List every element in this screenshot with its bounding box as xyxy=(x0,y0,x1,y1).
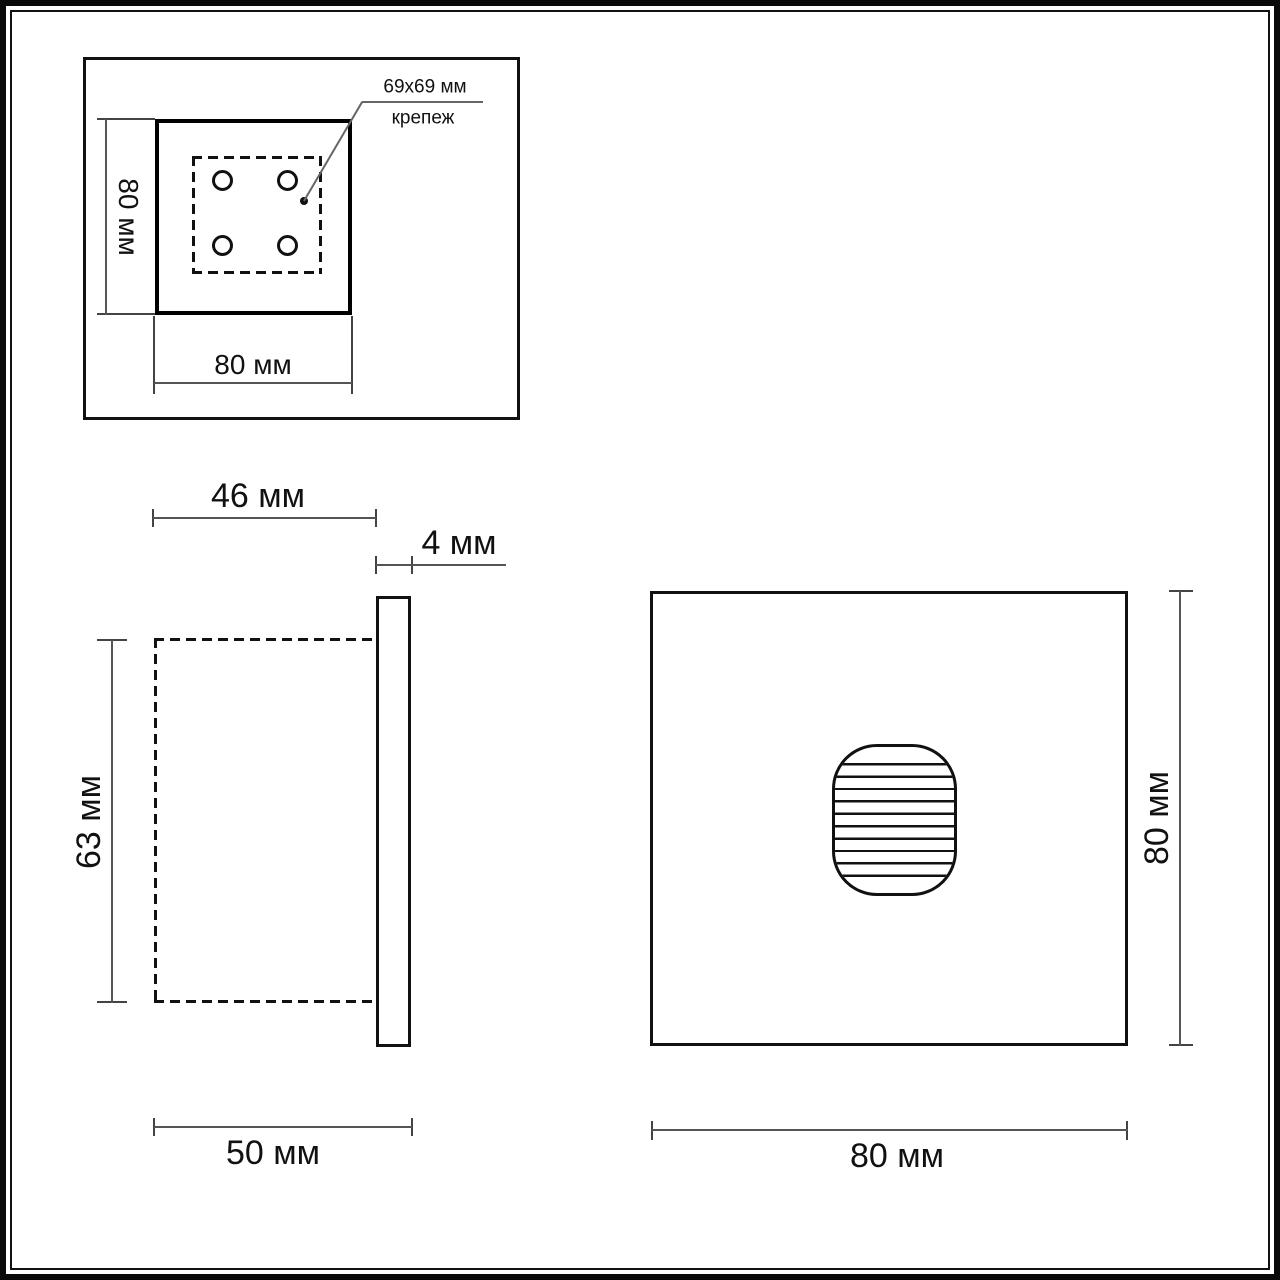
screw-hole-top-left xyxy=(212,170,233,191)
drawing-canvas: 69x69 мм крепеж 80 мм 80 мм 46 мм 4 мм xyxy=(0,0,1280,1280)
side-height-dim-line xyxy=(111,640,113,1003)
side-body-height-label: 63 мм xyxy=(72,775,106,869)
front-louver-slats xyxy=(835,763,954,885)
side-total-depth-label: 50 мм xyxy=(226,1136,320,1170)
screw-hole-top-right xyxy=(277,170,298,191)
back-view-square xyxy=(155,119,352,315)
side-plate-dim-line xyxy=(376,564,506,566)
back-width-label: 80 мм xyxy=(214,351,291,379)
callout-leader-underline xyxy=(362,101,483,103)
front-height-label: 80 мм xyxy=(1140,771,1174,865)
front-height-dim-line xyxy=(1179,591,1181,1046)
back-width-dim-line xyxy=(154,382,352,384)
side-body-dashed-left xyxy=(154,638,157,1003)
side-recess-dim-line xyxy=(153,517,376,519)
callout-size-label: 69x69 мм xyxy=(383,78,466,97)
mount-dashed-left xyxy=(192,156,195,274)
back-height-label: 80 мм xyxy=(114,178,142,255)
mount-dashed-bottom xyxy=(192,271,322,274)
side-recess-depth-label: 46 мм xyxy=(211,479,305,513)
mount-dashed-top xyxy=(192,156,322,159)
front-height-tick-bottom xyxy=(1169,1044,1193,1046)
side-total-dim-line xyxy=(154,1126,412,1128)
drawing-page: 69x69 мм крепеж 80 мм 80 мм 46 мм 4 мм xyxy=(0,0,1280,1280)
front-width-dim-line xyxy=(652,1129,1128,1131)
front-height-tick-top xyxy=(1169,590,1193,592)
side-body-dashed-top xyxy=(154,638,376,641)
side-face-plate xyxy=(376,596,411,1047)
front-width-label: 80 мм xyxy=(850,1139,944,1173)
screw-hole-bottom-right xyxy=(277,235,298,256)
front-louver-window xyxy=(832,744,957,896)
callout-name-label: крепеж xyxy=(392,109,455,128)
screw-hole-bottom-left xyxy=(212,235,233,256)
side-body-dashed-bottom xyxy=(154,1000,376,1003)
back-height-dim-line xyxy=(105,119,107,315)
side-plate-thickness-label: 4 мм xyxy=(421,526,496,560)
